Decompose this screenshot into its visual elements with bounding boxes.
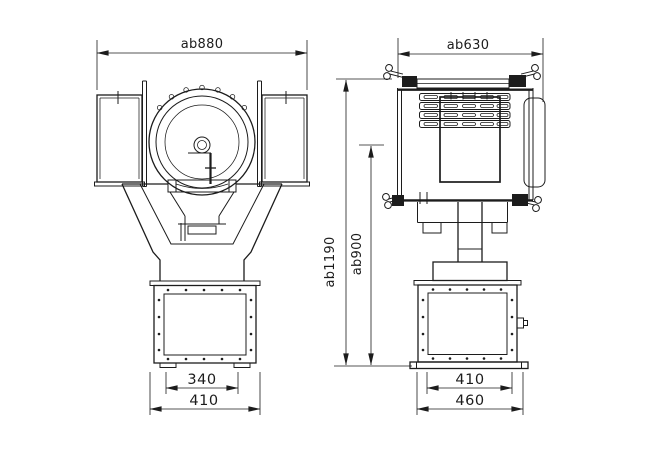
dim-front-overall-width: ab880	[97, 37, 307, 90]
right-ear-box	[258, 81, 310, 187]
lens-rings	[149, 85, 255, 195]
drawing-canvas: ab880 ab630 ab1190 ab900 340	[0, 0, 650, 450]
front-base-bolts	[158, 289, 253, 361]
lens-hub	[188, 137, 216, 184]
dim-height-overall: ab1190	[323, 79, 392, 365]
door-cover	[524, 98, 545, 187]
dim-label-side-base-outer: 460	[455, 393, 484, 409]
dim-label-front-width: ab880	[181, 37, 224, 52]
technical-drawing: ab880 ab630 ab1190 ab900 340	[0, 0, 650, 450]
side-base-bolts	[422, 288, 514, 360]
dim-front-base-inner: 340	[166, 372, 238, 394]
dim-side-base-inner: 410	[427, 372, 512, 394]
housing	[382, 64, 545, 212]
dim-height-axis: ab900	[350, 145, 384, 365]
cable-gland	[517, 318, 528, 328]
left-ear-box	[95, 81, 147, 187]
dim-label-side-base-inner: 410	[455, 372, 484, 388]
support-column	[418, 202, 508, 281]
front-base	[150, 281, 260, 368]
dim-label-height-overall: ab1190	[323, 236, 338, 287]
yoke	[122, 184, 282, 281]
dim-label-height-axis: ab900	[350, 233, 365, 276]
dim-label-front-base-outer: 410	[189, 393, 218, 409]
base-plate	[410, 362, 528, 369]
clamp-block	[402, 76, 417, 87]
side-view	[382, 64, 545, 369]
dim-label-front-base-inner: 340	[187, 372, 216, 388]
dim-side-overall-width: ab630	[398, 38, 543, 102]
dim-label-side-width: ab630	[447, 38, 490, 53]
side-base	[410, 281, 528, 369]
front-view	[95, 81, 310, 368]
